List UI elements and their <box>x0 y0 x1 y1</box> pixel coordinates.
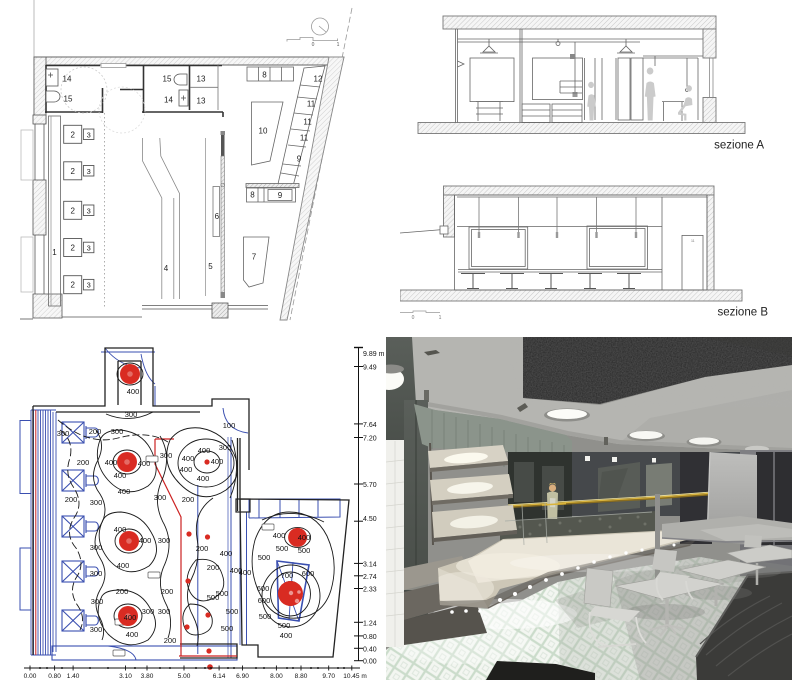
svg-text:300: 300 <box>158 536 171 545</box>
svg-text:500: 500 <box>221 624 234 633</box>
svg-text:300: 300 <box>111 427 124 436</box>
svg-text:300: 300 <box>90 625 103 634</box>
svg-text:3.14: 3.14 <box>363 561 377 568</box>
svg-text:400: 400 <box>197 474 210 483</box>
svg-text:2: 2 <box>70 281 75 290</box>
svg-text:200: 200 <box>196 544 209 553</box>
svg-text:600: 600 <box>257 584 270 593</box>
svg-text:400: 400 <box>273 531 286 540</box>
svg-text:8.80: 8.80 <box>295 673 308 680</box>
svg-text:300: 300 <box>154 493 167 502</box>
svg-text:13: 13 <box>197 97 206 106</box>
svg-text:0.00: 0.00 <box>24 673 37 680</box>
svg-text:700: 700 <box>281 571 294 580</box>
svg-text:10: 10 <box>259 127 268 136</box>
svg-text:400: 400 <box>180 465 193 474</box>
svg-text:400: 400 <box>117 561 130 570</box>
svg-text:5: 5 <box>208 262 213 271</box>
svg-text:300: 300 <box>142 607 155 616</box>
svg-text:600: 600 <box>302 569 315 578</box>
svg-text:3.80: 3.80 <box>141 673 154 680</box>
svg-text:4.50: 4.50 <box>363 516 377 523</box>
svg-text:400: 400 <box>114 471 127 480</box>
svg-text:200: 200 <box>161 587 174 596</box>
svg-text:400: 400 <box>126 630 139 639</box>
svg-text:400: 400 <box>280 631 293 640</box>
svg-text:8: 8 <box>262 71 267 80</box>
svg-text:2: 2 <box>70 130 75 139</box>
svg-text:400: 400 <box>105 458 118 467</box>
svg-text:2: 2 <box>70 244 75 253</box>
svg-text:500: 500 <box>278 621 291 630</box>
svg-text:11: 11 <box>307 100 316 109</box>
svg-text:6: 6 <box>215 212 220 221</box>
svg-text:2: 2 <box>70 167 75 176</box>
svg-text:3: 3 <box>87 281 91 290</box>
svg-text:300: 300 <box>91 597 104 606</box>
svg-text:3: 3 <box>87 167 91 176</box>
svg-text:200: 200 <box>207 563 220 572</box>
svg-text:400: 400 <box>298 533 311 542</box>
svg-text:300: 300 <box>90 498 103 507</box>
svg-text:300: 300 <box>160 451 173 460</box>
svg-text:0: 0 <box>312 42 315 48</box>
svg-text:6.90: 6.90 <box>236 673 249 680</box>
svg-text:10.45 m: 10.45 m <box>343 673 367 680</box>
svg-text:0.00: 0.00 <box>363 659 377 666</box>
svg-text:200: 200 <box>164 636 177 645</box>
svg-text:500: 500 <box>298 546 311 555</box>
svg-text:400: 400 <box>118 487 131 496</box>
svg-text:1.24: 1.24 <box>363 620 377 627</box>
svg-text:2: 2 <box>70 206 75 215</box>
svg-text:500: 500 <box>226 607 239 616</box>
svg-text:300: 300 <box>57 429 70 438</box>
svg-text:9.89 m: 9.89 m <box>363 351 385 358</box>
svg-text:6.14: 6.14 <box>213 673 226 680</box>
svg-text:13: 13 <box>197 75 206 84</box>
svg-text:1.40: 1.40 <box>67 673 80 680</box>
svg-text:7.20: 7.20 <box>363 436 377 443</box>
svg-text:3: 3 <box>87 244 91 253</box>
svg-text:400: 400 <box>211 457 224 466</box>
svg-text:4: 4 <box>164 264 169 273</box>
svg-text:15: 15 <box>64 95 73 104</box>
svg-text:0.80: 0.80 <box>48 673 61 680</box>
svg-text:400: 400 <box>220 549 233 558</box>
svg-text:11: 11 <box>300 134 309 143</box>
svg-text:1: 1 <box>439 315 442 321</box>
svg-text:14: 14 <box>164 96 173 105</box>
svg-text:5.00: 5.00 <box>178 673 191 680</box>
svg-text:200: 200 <box>116 587 129 596</box>
svg-text:400: 400 <box>124 613 137 622</box>
svg-text:3: 3 <box>87 130 91 139</box>
svg-text:sezione B: sezione B <box>717 307 768 319</box>
svg-text:400: 400 <box>138 459 151 468</box>
svg-text:5.70: 5.70 <box>363 482 377 489</box>
svg-text:9.70: 9.70 <box>322 673 335 680</box>
svg-text:1: 1 <box>52 248 57 257</box>
svg-text:7: 7 <box>252 253 257 262</box>
svg-text:15: 15 <box>163 75 172 84</box>
svg-text:sezione A: sezione A <box>714 140 764 152</box>
svg-text:9: 9 <box>297 155 302 164</box>
svg-text:2.74: 2.74 <box>363 574 377 581</box>
svg-text:400: 400 <box>198 446 211 455</box>
svg-text:11: 11 <box>303 118 312 127</box>
svg-text:100: 100 <box>223 421 236 430</box>
svg-text:3: 3 <box>87 206 91 215</box>
svg-text:11: 11 <box>691 239 695 243</box>
svg-text:400: 400 <box>114 525 127 534</box>
svg-text:9: 9 <box>278 191 283 200</box>
svg-text:12: 12 <box>314 75 323 84</box>
svg-text:200: 200 <box>77 458 90 467</box>
svg-text:500: 500 <box>207 593 220 602</box>
svg-text:400: 400 <box>239 568 252 577</box>
svg-text:3.10: 3.10 <box>119 673 132 680</box>
svg-text:1: 1 <box>337 42 340 48</box>
svg-text:400: 400 <box>127 387 140 396</box>
svg-text:500: 500 <box>258 553 271 562</box>
svg-text:300: 300 <box>90 543 103 552</box>
svg-text:500: 500 <box>276 544 289 553</box>
svg-text:400: 400 <box>139 536 152 545</box>
svg-text:8: 8 <box>250 191 255 200</box>
svg-text:400: 400 <box>182 454 195 463</box>
svg-text:300: 300 <box>158 607 171 616</box>
svg-text:0: 0 <box>412 315 415 321</box>
svg-text:200: 200 <box>89 427 102 436</box>
svg-text:7.64: 7.64 <box>363 422 377 429</box>
svg-text:14: 14 <box>63 75 72 84</box>
svg-text:600: 600 <box>258 596 271 605</box>
svg-text:0.40: 0.40 <box>363 646 377 653</box>
svg-text:300: 300 <box>125 410 138 419</box>
svg-text:300: 300 <box>219 443 232 452</box>
svg-text:500: 500 <box>259 612 272 621</box>
svg-text:9.49: 9.49 <box>363 365 377 372</box>
svg-text:8.00: 8.00 <box>270 673 283 680</box>
svg-text:200: 200 <box>65 495 78 504</box>
svg-text:0.80: 0.80 <box>363 634 377 641</box>
svg-text:200: 200 <box>182 495 195 504</box>
svg-text:300: 300 <box>90 569 103 578</box>
svg-text:2.33: 2.33 <box>363 587 377 594</box>
